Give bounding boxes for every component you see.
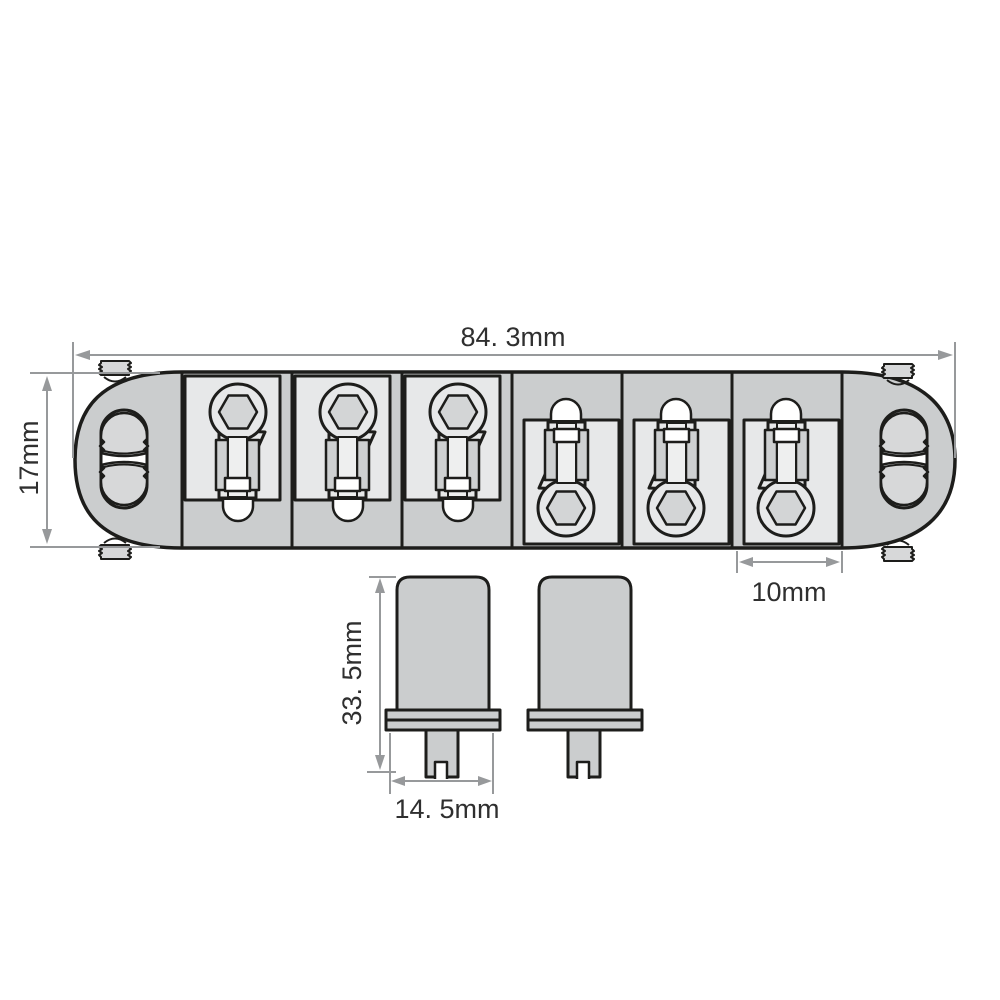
saddle-section-1: [185, 376, 280, 521]
label-body-width: 17mm: [14, 420, 44, 495]
mounting-post-right: [528, 577, 642, 779]
dimension-saddle-width: 10mm: [737, 551, 842, 607]
saddle-section-2: [295, 376, 390, 521]
dimension-post-height: 33. 5mm: [337, 577, 396, 772]
mounting-stud-slot-left: [100, 410, 148, 508]
label-post-flange-width: 14. 5mm: [394, 794, 499, 824]
dimension-diagram: 84. 3mm 17mm 10mm 33. 5mm 14. 5mm: [0, 0, 1000, 1000]
saddle-section-3: [405, 376, 500, 521]
label-overall-length: 84. 3mm: [460, 322, 565, 352]
saddle-section-4: [524, 399, 619, 544]
bridge-top-view: [75, 361, 955, 561]
saddle-section-5: [634, 399, 729, 544]
diagram-canvas: 84. 3mm 17mm 10mm 33. 5mm 14. 5mm: [0, 0, 1000, 1000]
mounting-stud-slot-right: [880, 410, 928, 508]
mounting-post-left: [386, 577, 500, 779]
label-post-height: 33. 5mm: [337, 620, 367, 725]
label-saddle-width: 10mm: [751, 577, 826, 607]
saddle-section-6: [744, 399, 839, 544]
